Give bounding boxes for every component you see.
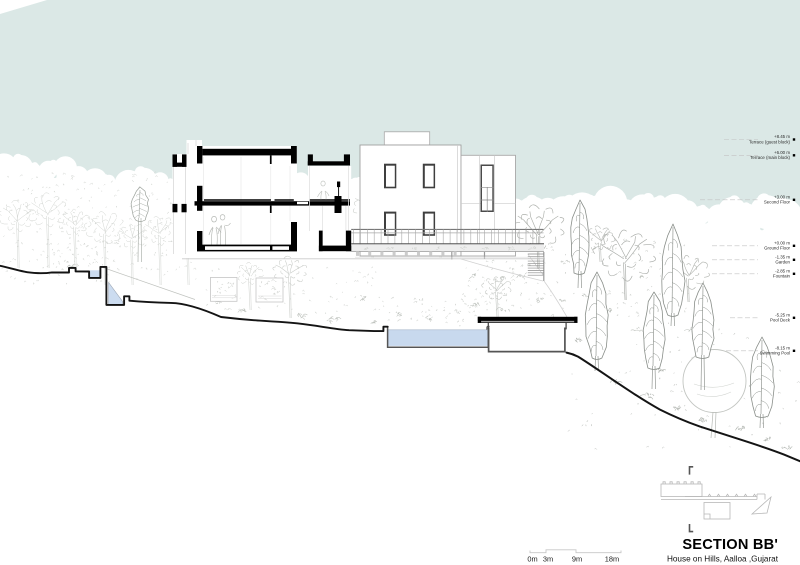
svg-text:-1.35 m: -1.35 m	[775, 254, 790, 259]
svg-text:18m: 18m	[605, 555, 619, 564]
svg-text:Fountain: Fountain	[773, 274, 791, 279]
svg-text:+8.45 m: +8.45 m	[774, 134, 790, 139]
svg-text:-5.25 m: -5.25 m	[775, 312, 790, 317]
svg-text:+6.00 m: +6.00 m	[774, 150, 790, 155]
svg-text:+3.00 m: +3.00 m	[774, 194, 790, 199]
svg-text:-8.15 m: -8.15 m	[775, 345, 790, 350]
svg-text:Pool Deck: Pool Deck	[770, 318, 791, 323]
svg-text:Swimming Pool: Swimming Pool	[760, 351, 790, 356]
svg-text:-2.85 m: -2.85 m	[775, 268, 790, 273]
svg-text:3m: 3m	[543, 555, 553, 564]
svg-text:9m: 9m	[572, 555, 582, 564]
svg-text:Terrace (main block): Terrace (main block)	[750, 155, 790, 160]
svg-text:Garden: Garden	[775, 260, 790, 265]
svg-text:+0.00 m: +0.00 m	[774, 240, 790, 245]
svg-text:SECTION BB': SECTION BB'	[682, 537, 778, 553]
svg-text:Ground Floor: Ground Floor	[764, 246, 790, 251]
svg-text:0m: 0m	[527, 555, 537, 564]
svg-text:House on Hills, Aalloa ,Gujara: House on Hills, Aalloa ,Gujarat	[667, 555, 779, 564]
svg-text:Second Floor: Second Floor	[764, 200, 791, 205]
svg-text:Terrace (guest block): Terrace (guest block)	[749, 139, 791, 144]
